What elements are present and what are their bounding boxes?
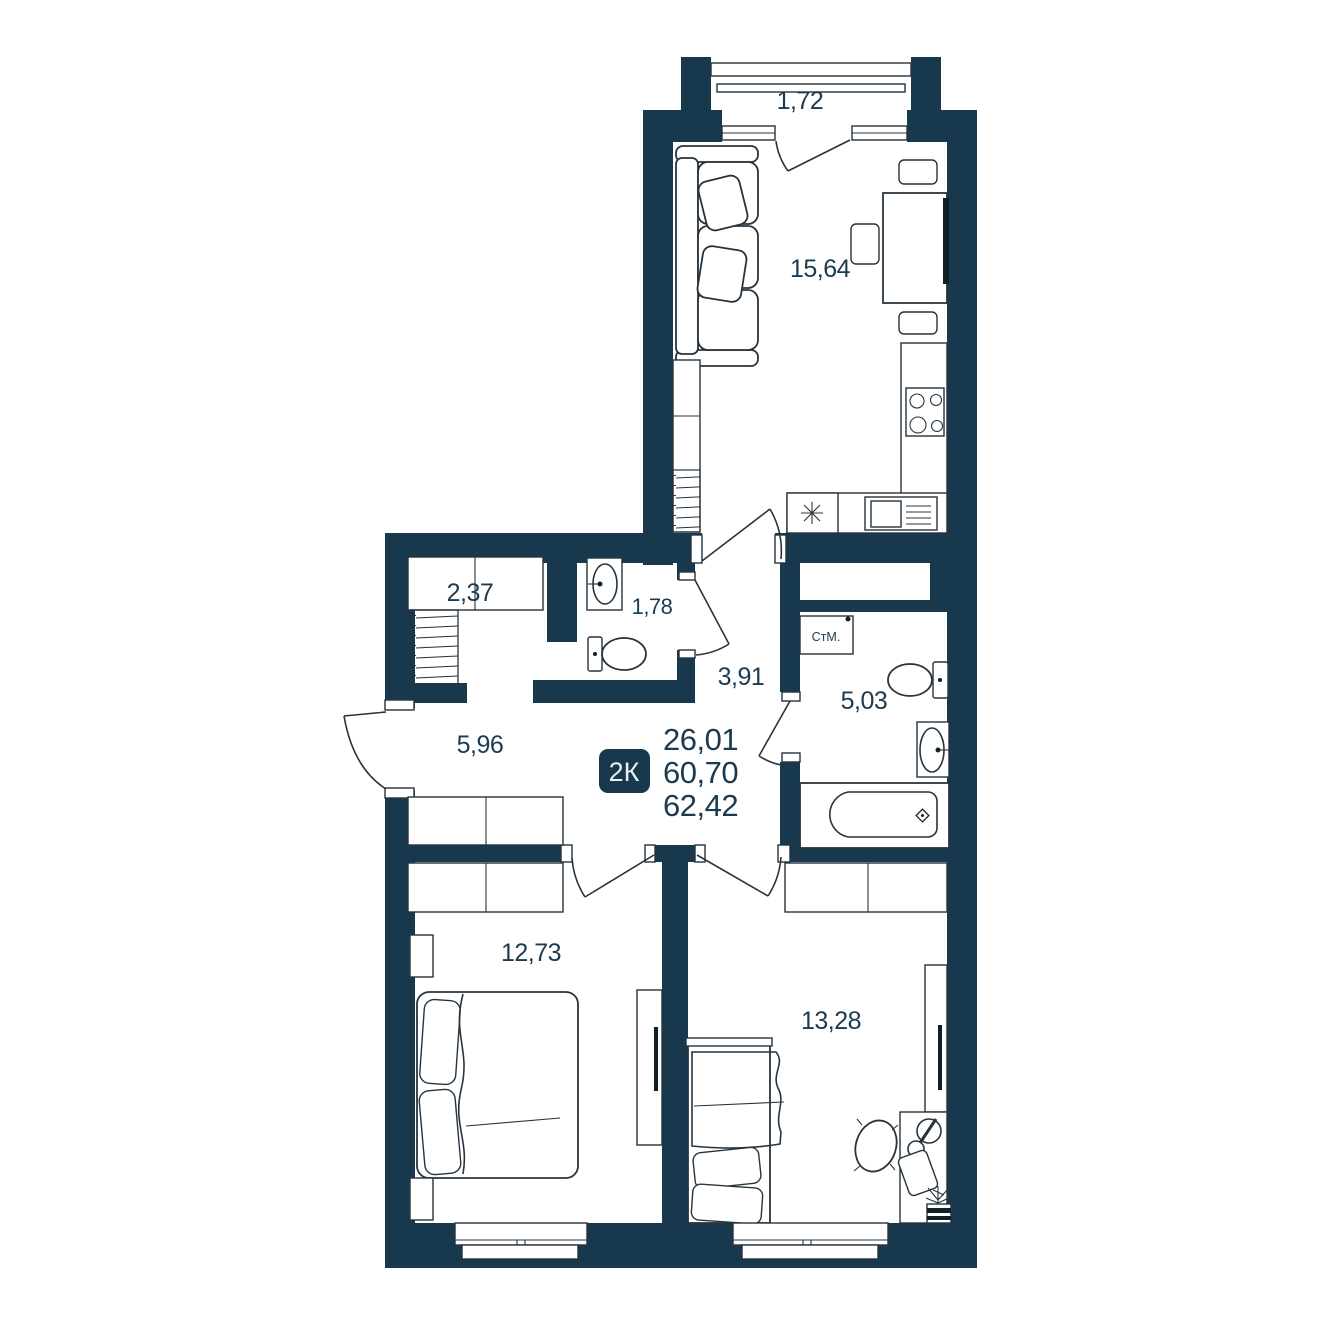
washing-machine: СтМ. — [800, 616, 853, 654]
area-value-2: 60,70 — [663, 755, 738, 790]
wc-sink — [587, 558, 622, 610]
bath-toilet — [888, 662, 948, 698]
balcony-window-left — [722, 126, 775, 140]
closet-area-label: 2,37 — [447, 579, 494, 607]
oven — [865, 497, 937, 530]
bedroom-1 — [408, 855, 662, 1220]
bedroom2-area-label: 13,28 — [801, 1007, 861, 1035]
double-bed — [417, 992, 578, 1178]
bedroom1-area-label: 12,73 — [501, 939, 561, 967]
sofa-pillow — [696, 245, 748, 303]
balcony-window-right — [852, 126, 907, 140]
wc-area-label: 1,78 — [632, 594, 673, 619]
nightstand — [410, 1178, 433, 1220]
apartment-type-label: 2К — [609, 757, 640, 787]
bedroom2-wardrobe — [785, 863, 947, 912]
entrance-door — [344, 712, 386, 789]
desk — [897, 1112, 951, 1223]
floor-plan-page: СтМ. — [0, 0, 1320, 1320]
entry-hall — [344, 712, 563, 845]
hallway-area-label: 3,91 — [718, 663, 765, 691]
pillow — [691, 1184, 763, 1225]
washing-machine-label: СтМ. — [812, 630, 841, 644]
bedroom1-dresser — [637, 990, 662, 1145]
chair — [851, 224, 879, 264]
kitchen-door — [702, 509, 781, 561]
bath-sink — [917, 722, 949, 777]
bedroom2-door — [697, 855, 781, 896]
area-value-3: 62,42 — [663, 788, 738, 823]
wc-toilet — [588, 637, 646, 671]
bedroom1-window — [455, 1223, 587, 1259]
area-value-1: 26,01 — [663, 722, 738, 757]
kitchen-sink — [787, 493, 838, 533]
tv — [943, 198, 949, 284]
pillow — [692, 1147, 761, 1190]
kitchen-area-label: 15,64 — [790, 255, 851, 283]
shelf-unit — [410, 610, 458, 685]
bedroom2-window — [733, 1223, 888, 1259]
bedroom1-door — [572, 855, 654, 897]
side-shelf-unit — [673, 360, 700, 532]
chair — [899, 312, 937, 334]
bathtub — [800, 783, 949, 848]
entry-area-label: 5,96 — [457, 731, 504, 759]
bedroom-2 — [686, 855, 951, 1224]
nightstand — [410, 935, 433, 977]
apartment-type-badge: 2К — [599, 749, 650, 793]
pillow — [419, 999, 461, 1085]
chair — [899, 160, 937, 184]
stove — [906, 388, 944, 436]
wc-door — [695, 580, 729, 655]
single-bed — [686, 1038, 784, 1224]
pillow — [418, 1089, 461, 1176]
bathroom-area-label: 5,03 — [841, 687, 888, 715]
balcony-area-label: 1,72 — [777, 87, 824, 115]
balcony-door — [776, 140, 850, 171]
kitchen-counter — [787, 343, 947, 533]
floor-plan-svg: СтМ. — [0, 0, 1320, 1320]
closet — [408, 557, 543, 685]
balcony-railing — [711, 63, 911, 76]
kitchen-living-room — [673, 146, 949, 561]
sofa — [676, 146, 758, 366]
dining-table — [851, 160, 949, 334]
bedroom2-dresser — [925, 965, 947, 1112]
desk-chair — [849, 1115, 903, 1177]
